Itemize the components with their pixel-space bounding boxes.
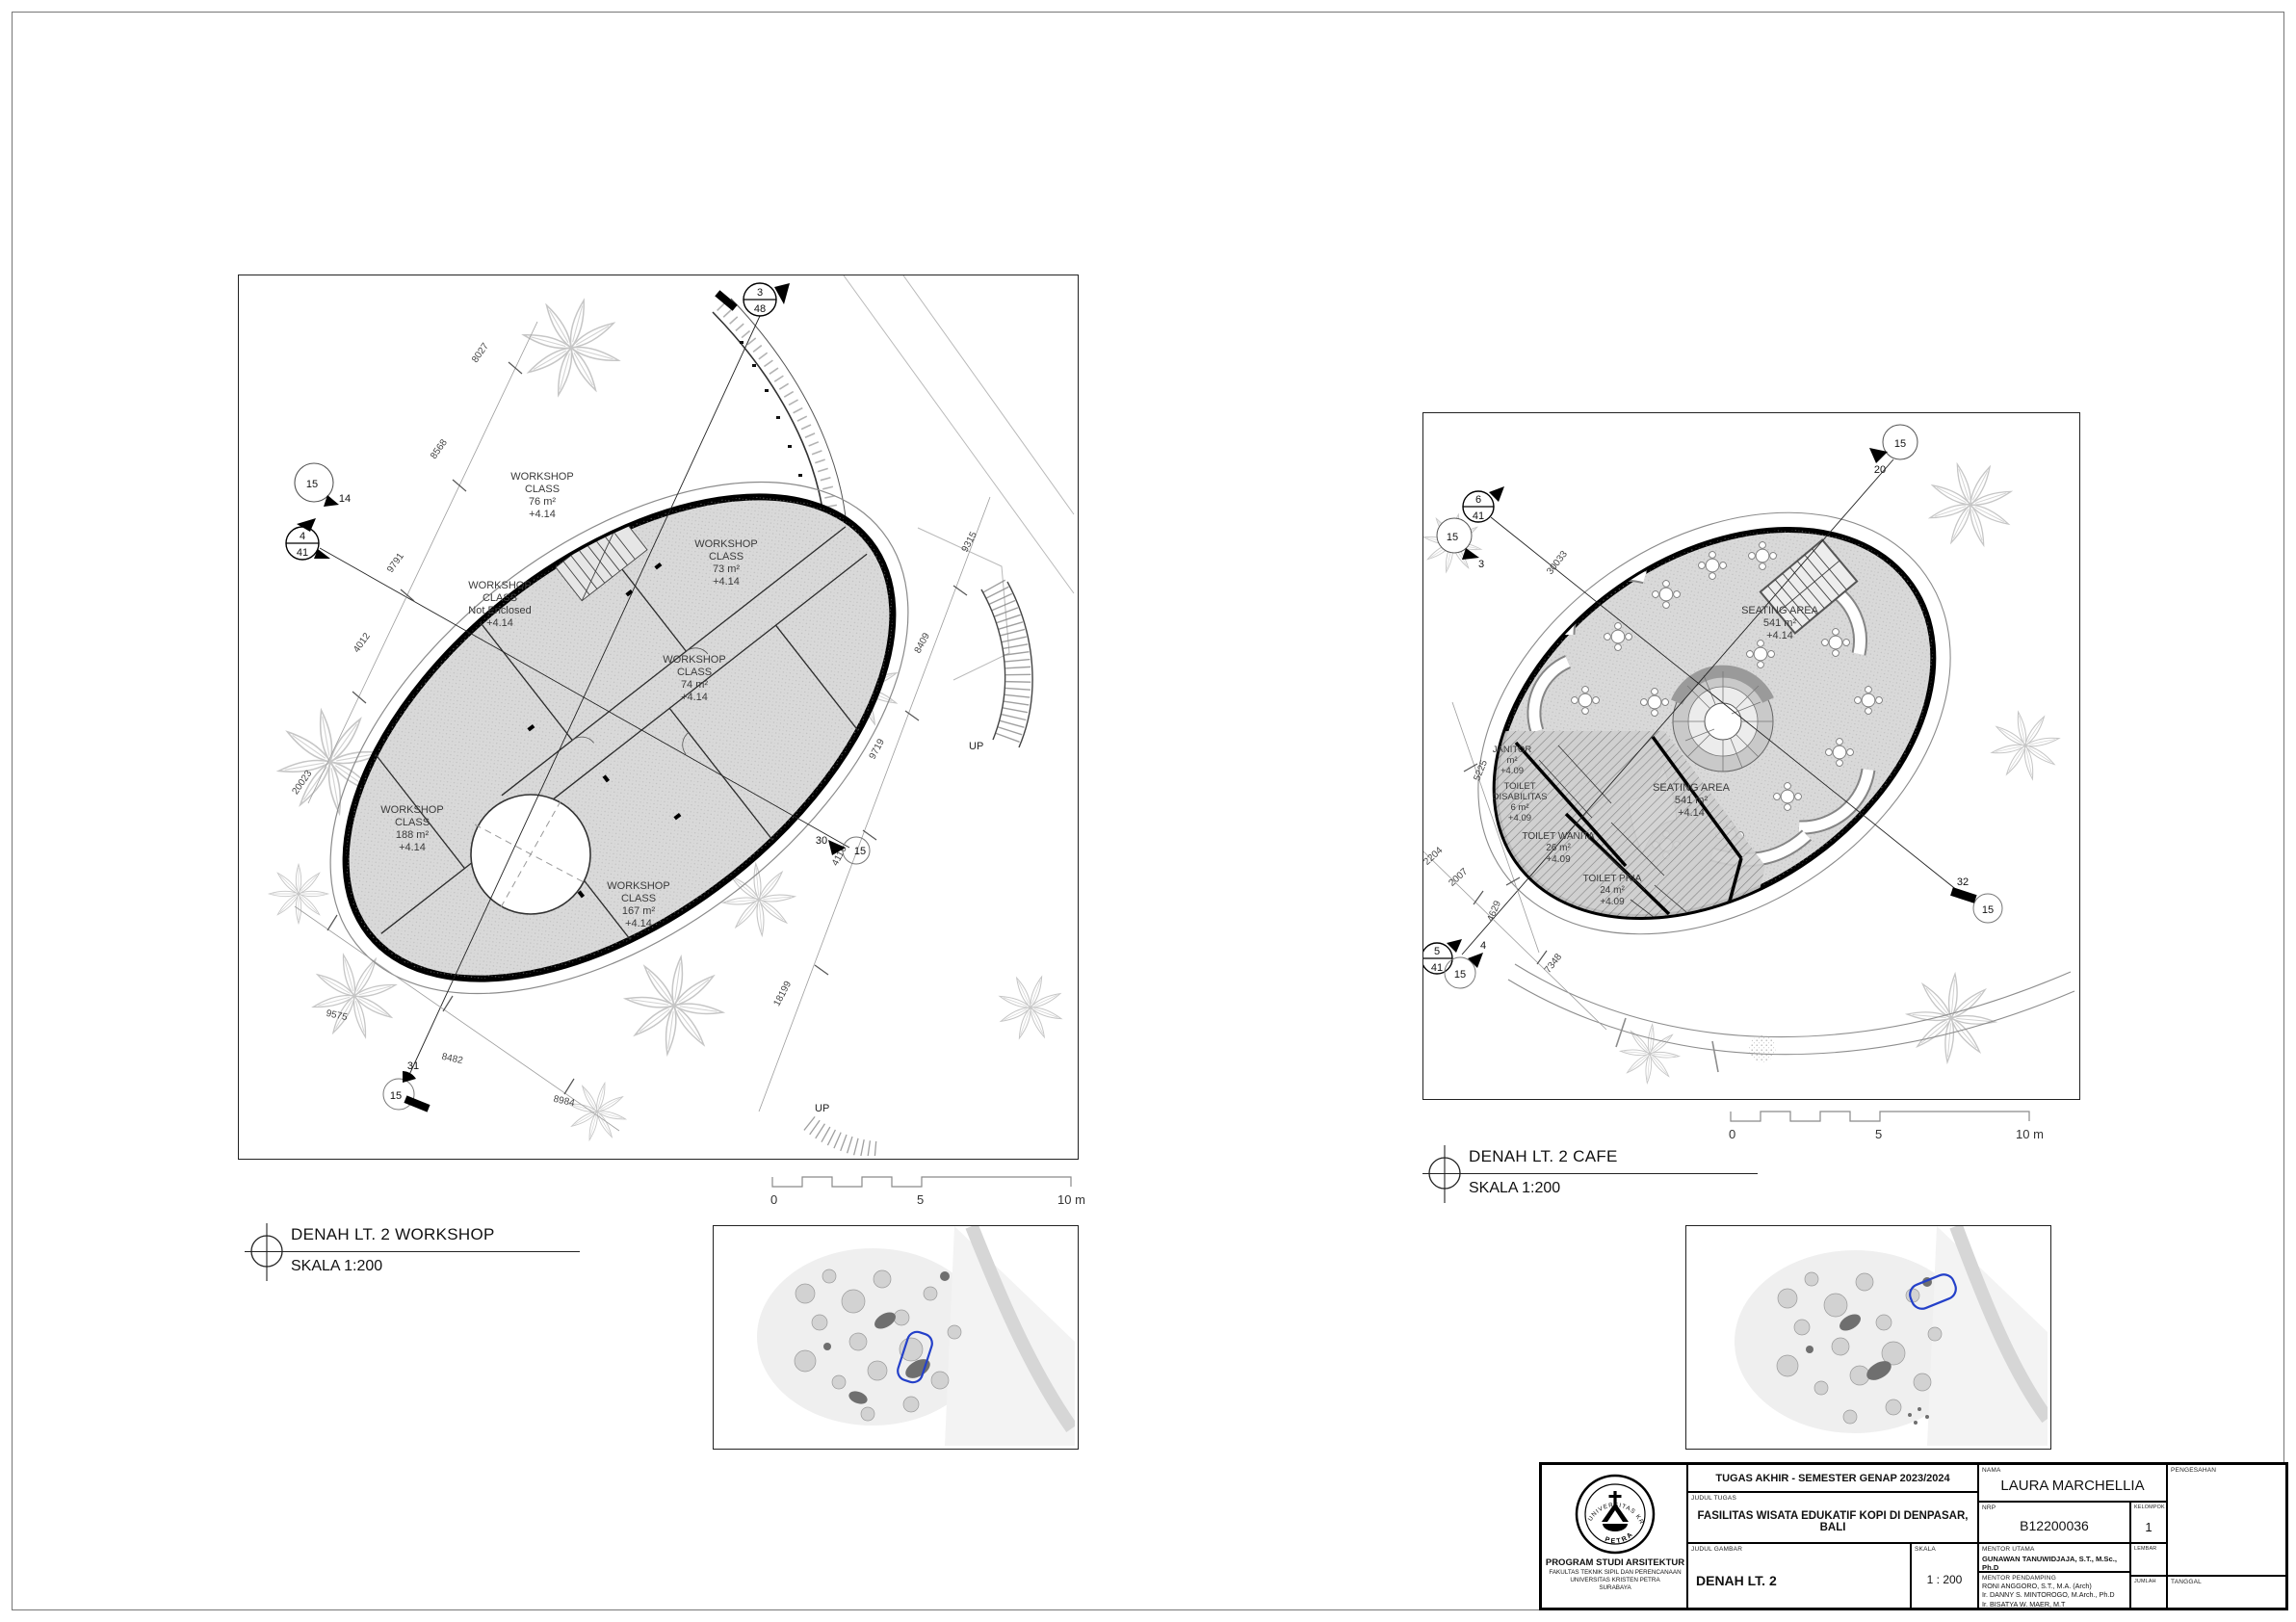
title-underline bbox=[1422, 1173, 1758, 1174]
field-label: JUMLAH bbox=[2134, 1579, 2156, 1584]
marker-number: 5 bbox=[1434, 946, 1440, 957]
field-label: TANGGAL bbox=[2171, 1579, 2202, 1585]
marker-number: 15 bbox=[306, 479, 318, 490]
skala-value: 1 : 200 bbox=[1912, 1565, 1977, 1594]
project-header: TUGAS AKHIR - SEMESTER GENAP 2023/2024 bbox=[1687, 1464, 1978, 1492]
section-marker-top-left: 6 41 bbox=[1463, 486, 1504, 522]
cafe-scale-bar: 0 5 10 m bbox=[1729, 1104, 2047, 1148]
view-marker-top-left: 15 3 bbox=[1437, 518, 1484, 570]
dim-label: 2204 bbox=[1423, 845, 1446, 867]
marker-number: 15 bbox=[390, 1090, 402, 1102]
institution-line: SURABAYA bbox=[1542, 1584, 1688, 1592]
marker-number: 14 bbox=[339, 493, 351, 505]
workshop-key-map bbox=[713, 1225, 1079, 1450]
room-label-line: +4.14 bbox=[1766, 630, 1793, 641]
room-label-line: WORKSHOP bbox=[380, 804, 443, 816]
dim-label: 4012 bbox=[352, 631, 373, 655]
cafe-key-map bbox=[1685, 1225, 2051, 1450]
dim-label: 9791 bbox=[385, 551, 406, 575]
room-label-line: +4.09 bbox=[1600, 897, 1625, 907]
room-label-line: +4.14 bbox=[1678, 807, 1705, 819]
marker-number: 15 bbox=[1454, 969, 1466, 981]
field-label: MENTOR PENDAMPING bbox=[1982, 1575, 2056, 1582]
section-marker-top: 3 48 bbox=[744, 283, 790, 316]
institution-text: PROGRAM STUDI ARSITEKTUR FAKULTAS TEKNIK… bbox=[1542, 1557, 1688, 1591]
cafe-plan-drawing: 30033 5225 2204 2007 4629 7348 SEATING A… bbox=[1423, 413, 2076, 1096]
context-path bbox=[1508, 964, 2074, 1072]
marker-number: 6 bbox=[1475, 494, 1481, 506]
field-label: KELOMPOK bbox=[2134, 1504, 2165, 1510]
nrp-value: B12200036 bbox=[1979, 1510, 2129, 1541]
walkway-end-cap bbox=[715, 290, 738, 311]
marker-number: 31 bbox=[407, 1060, 419, 1072]
room-label-line: TOILET PRIA bbox=[1583, 874, 1642, 884]
room-label-line: CLASS bbox=[621, 893, 656, 904]
institution-cell: UNIVERSITAS KRISTEN PETRA PROGRAM STUDI … bbox=[1541, 1464, 1687, 1609]
title-underline bbox=[245, 1251, 580, 1252]
judul-tugas-value: FASILITAS WISATA EDUKATIF KOPI DI DENPAS… bbox=[1688, 1503, 1977, 1541]
mentor-line: RONI ANGGORO, S.T., M.A. (Arch) bbox=[1982, 1582, 2115, 1590]
room-label-line: 167 m² bbox=[622, 905, 656, 917]
workshop-scale-bar: 0 5 10 m bbox=[770, 1169, 1088, 1214]
up-label: UP bbox=[815, 1103, 829, 1114]
workshop-plan-viewport: UP UP bbox=[238, 275, 1079, 1160]
field-label: JUDUL TUGAS bbox=[1691, 1495, 1736, 1502]
plan-scale-text: SKALA 1:200 bbox=[1469, 1180, 1560, 1197]
marker-number: 15 bbox=[854, 846, 866, 857]
marker-number: 48 bbox=[754, 303, 766, 315]
mentor-utama-value: GUNAWAN TANUWIDJAJA, S.T., M.Sc., Ph.D bbox=[1982, 1555, 2129, 1572]
marker-number: 30 bbox=[816, 835, 827, 847]
scale-tick-5: 5 bbox=[917, 1192, 924, 1207]
room-label-line: +4.09 bbox=[1508, 813, 1531, 824]
curved-stair-right: UP bbox=[969, 582, 1032, 752]
institution-line: UNIVERSITAS KRISTEN PETRA bbox=[1542, 1577, 1688, 1584]
view-marker-left: 15 14 bbox=[295, 463, 351, 507]
room-label-line: +4.09 bbox=[1500, 766, 1524, 776]
drawing-sheet: UP UP bbox=[0, 0, 2296, 1622]
central-stair bbox=[1673, 671, 1773, 772]
room-label-line: +4.14 bbox=[529, 509, 556, 520]
marker-number: 32 bbox=[1957, 876, 1969, 888]
judul-gambar-value: DENAH LT. 2 bbox=[1696, 1573, 1777, 1588]
room-label-line: DISABILITAS bbox=[1493, 792, 1548, 802]
dim-label: 8984 bbox=[552, 1094, 575, 1109]
room-label-line: SEATING AREA bbox=[1653, 782, 1731, 794]
room-label-line: CLASS bbox=[483, 592, 517, 604]
room-label-line: CLASS bbox=[525, 484, 560, 495]
dim-label: 18199 bbox=[771, 980, 794, 1008]
section-marker-left: 4 41 bbox=[286, 518, 330, 560]
cafe-plan-viewport: 30033 5225 2204 2007 4629 7348 SEATING A… bbox=[1422, 412, 2080, 1100]
title-block: UNIVERSITAS KRISTEN PETRA PROGRAM STUDI … bbox=[1539, 1462, 2288, 1610]
room-label-line: 73 m² bbox=[713, 563, 740, 575]
dim-label: 8027 bbox=[470, 341, 491, 365]
room-label-line: WORKSHOP bbox=[468, 580, 531, 591]
room-label-line: 188 m² bbox=[396, 829, 430, 841]
curved-stair-bottom: UP bbox=[809, 1103, 876, 1150]
room-label-line: SEATING AREA bbox=[1741, 605, 1819, 616]
judul-tugas-cell: JUDUL TUGAS FASILITAS WISATA EDUKATIF KO… bbox=[1687, 1492, 1978, 1543]
plan-title-text: DENAH LT. 2 WORKSHOP bbox=[291, 1225, 495, 1244]
field-label: MENTOR UTAMA bbox=[1982, 1546, 2035, 1553]
room-label-line: CLASS bbox=[395, 817, 430, 828]
marker-number: 3 bbox=[1478, 559, 1484, 570]
field-label: LEMBAR bbox=[2134, 1546, 2156, 1552]
cafe-plan-title: DENAH LT. 2 CAFE SKALA 1:200 bbox=[1421, 1143, 1767, 1211]
field-label: SKALA bbox=[1915, 1546, 1936, 1553]
marker-number: 41 bbox=[1431, 962, 1443, 974]
room-label-line: TOILET bbox=[1503, 781, 1535, 792]
dim-label: 7348 bbox=[1543, 952, 1565, 976]
room-label-line: WORKSHOP bbox=[607, 880, 669, 892]
pengesahan-cell: PENGESAHAN bbox=[2167, 1464, 2286, 1576]
dim-label: 30033 bbox=[1545, 549, 1570, 577]
nama-cell: NAMA LAURA MARCHELLIA bbox=[1978, 1464, 2167, 1502]
room-label-line: 541 m² bbox=[1675, 795, 1709, 806]
room-label: WORKSHOP CLASS 76 m² +4.14 bbox=[510, 471, 573, 520]
scale-tick-0: 0 bbox=[770, 1192, 777, 1207]
mentor-line: Ir. BISATYA W. MAER, M.T bbox=[1982, 1600, 2115, 1609]
marker-number: 15 bbox=[1447, 532, 1458, 543]
scale-bar-steps bbox=[772, 1177, 1071, 1187]
room-label-line: +4.14 bbox=[625, 918, 652, 929]
workshop-plan-drawing: UP UP bbox=[239, 275, 1075, 1156]
dim-label: 4629 bbox=[1485, 899, 1503, 923]
scale-tick-10: 10 m bbox=[2016, 1127, 2044, 1141]
room-label-line: 541 m² bbox=[1763, 617, 1797, 629]
scale-bar-steps bbox=[1731, 1112, 2029, 1121]
dim-label: 8409 bbox=[913, 631, 932, 655]
view-marker-bottom: 31 15 bbox=[383, 1060, 430, 1112]
kelompok-cell: KELOMPOK 1 bbox=[2130, 1502, 2167, 1543]
room-label-line: +4.14 bbox=[399, 842, 426, 853]
room-label-line: +4.14 bbox=[713, 576, 740, 588]
mentor-utama-cell: MENTOR UTAMA GUNAWAN TANUWIDJAJA, S.T., … bbox=[1978, 1543, 2130, 1572]
dim-label: 8482 bbox=[440, 1052, 463, 1066]
room-label-line: m² bbox=[1506, 755, 1517, 766]
room-label-line: Not Enclosed bbox=[468, 605, 531, 616]
field-label: PENGESAHAN bbox=[2171, 1467, 2216, 1474]
institution-line: PROGRAM STUDI ARSITEKTUR bbox=[1542, 1557, 1688, 1569]
lembar-cell: LEMBAR bbox=[2130, 1543, 2167, 1576]
marker-number: 41 bbox=[1473, 510, 1484, 522]
room-label-line: CLASS bbox=[709, 551, 744, 562]
room-label-line: 26 m² bbox=[1546, 843, 1571, 853]
kelompok-value: 1 bbox=[2131, 1512, 2166, 1541]
mentor-pendamping-cell: MENTOR PENDAMPING RONI ANGGORO, S.T., M.… bbox=[1978, 1572, 2130, 1609]
jumlah-cell: JUMLAH bbox=[2130, 1576, 2167, 1609]
dim-label: 9719 bbox=[868, 737, 887, 761]
mentor-line: Ir. DANNY S. MINTOROGO, M.Arch., Ph.D bbox=[1982, 1590, 2115, 1599]
plan-title-text: DENAH LT. 2 CAFE bbox=[1469, 1147, 1618, 1166]
university-logo: UNIVERSITAS KRISTEN PETRA bbox=[1575, 1473, 1656, 1556]
room-label-line: WORKSHOP bbox=[510, 471, 573, 483]
view-marker-top-right: 15 20 bbox=[1869, 425, 1918, 476]
room-label-line: +4.14 bbox=[681, 692, 708, 703]
marker-number: 41 bbox=[297, 547, 308, 559]
room-label-line: 24 m² bbox=[1600, 885, 1625, 896]
room-label-line: +4.14 bbox=[486, 617, 513, 629]
nrp-cell: NRP B12200036 bbox=[1978, 1502, 2130, 1543]
marker-number: 15 bbox=[1982, 904, 1994, 916]
marker-number: 20 bbox=[1874, 464, 1886, 476]
room-label-line: +4.09 bbox=[1546, 854, 1571, 865]
workshop-plan-title: DENAH LT. 2 WORKSHOP SKALA 1:200 bbox=[243, 1221, 589, 1289]
marker-number: 4 bbox=[1480, 940, 1486, 952]
room-label-line: 76 m² bbox=[529, 496, 556, 508]
dim-label: 8568 bbox=[429, 437, 450, 461]
dim-label: 5225 bbox=[1472, 758, 1490, 782]
field-label: JUDUL GAMBAR bbox=[1691, 1546, 1742, 1553]
judul-gambar-cell: JUDUL GAMBAR DENAH LT. 2 bbox=[1687, 1543, 1911, 1609]
scale-tick-10: 10 m bbox=[1057, 1192, 1085, 1207]
marker-number: 3 bbox=[757, 287, 763, 299]
institution-line: FAKULTAS TEKNIK SIPIL DAN PERENCANAAN bbox=[1542, 1569, 1688, 1577]
room-label-line: 6 m² bbox=[1511, 802, 1529, 813]
marker-number: 15 bbox=[1894, 438, 1906, 450]
nama-value: LAURA MARCHELLIA bbox=[1979, 1471, 2166, 1500]
view-marker-right: 32 15 bbox=[1950, 876, 2002, 923]
room-label-line: WORKSHOP bbox=[694, 538, 757, 550]
room-label-line: 74 m² bbox=[681, 679, 708, 691]
room-label-line: WORKSHOP bbox=[663, 654, 725, 666]
marker-number: 4 bbox=[300, 531, 305, 542]
room-label-line: CLASS bbox=[677, 667, 712, 678]
room-label-line: JANITOR bbox=[1493, 745, 1532, 755]
scale-tick-0: 0 bbox=[1729, 1127, 1735, 1141]
room-label-line: TOILET WANITA bbox=[1522, 831, 1595, 842]
up-label: UP bbox=[969, 741, 983, 752]
tanggal-cell: TANGGAL bbox=[2167, 1576, 2286, 1609]
skala-cell: SKALA 1 : 200 bbox=[1911, 1543, 1978, 1609]
plan-scale-text: SKALA 1:200 bbox=[291, 1258, 382, 1275]
scale-tick-5: 5 bbox=[1875, 1127, 1882, 1141]
